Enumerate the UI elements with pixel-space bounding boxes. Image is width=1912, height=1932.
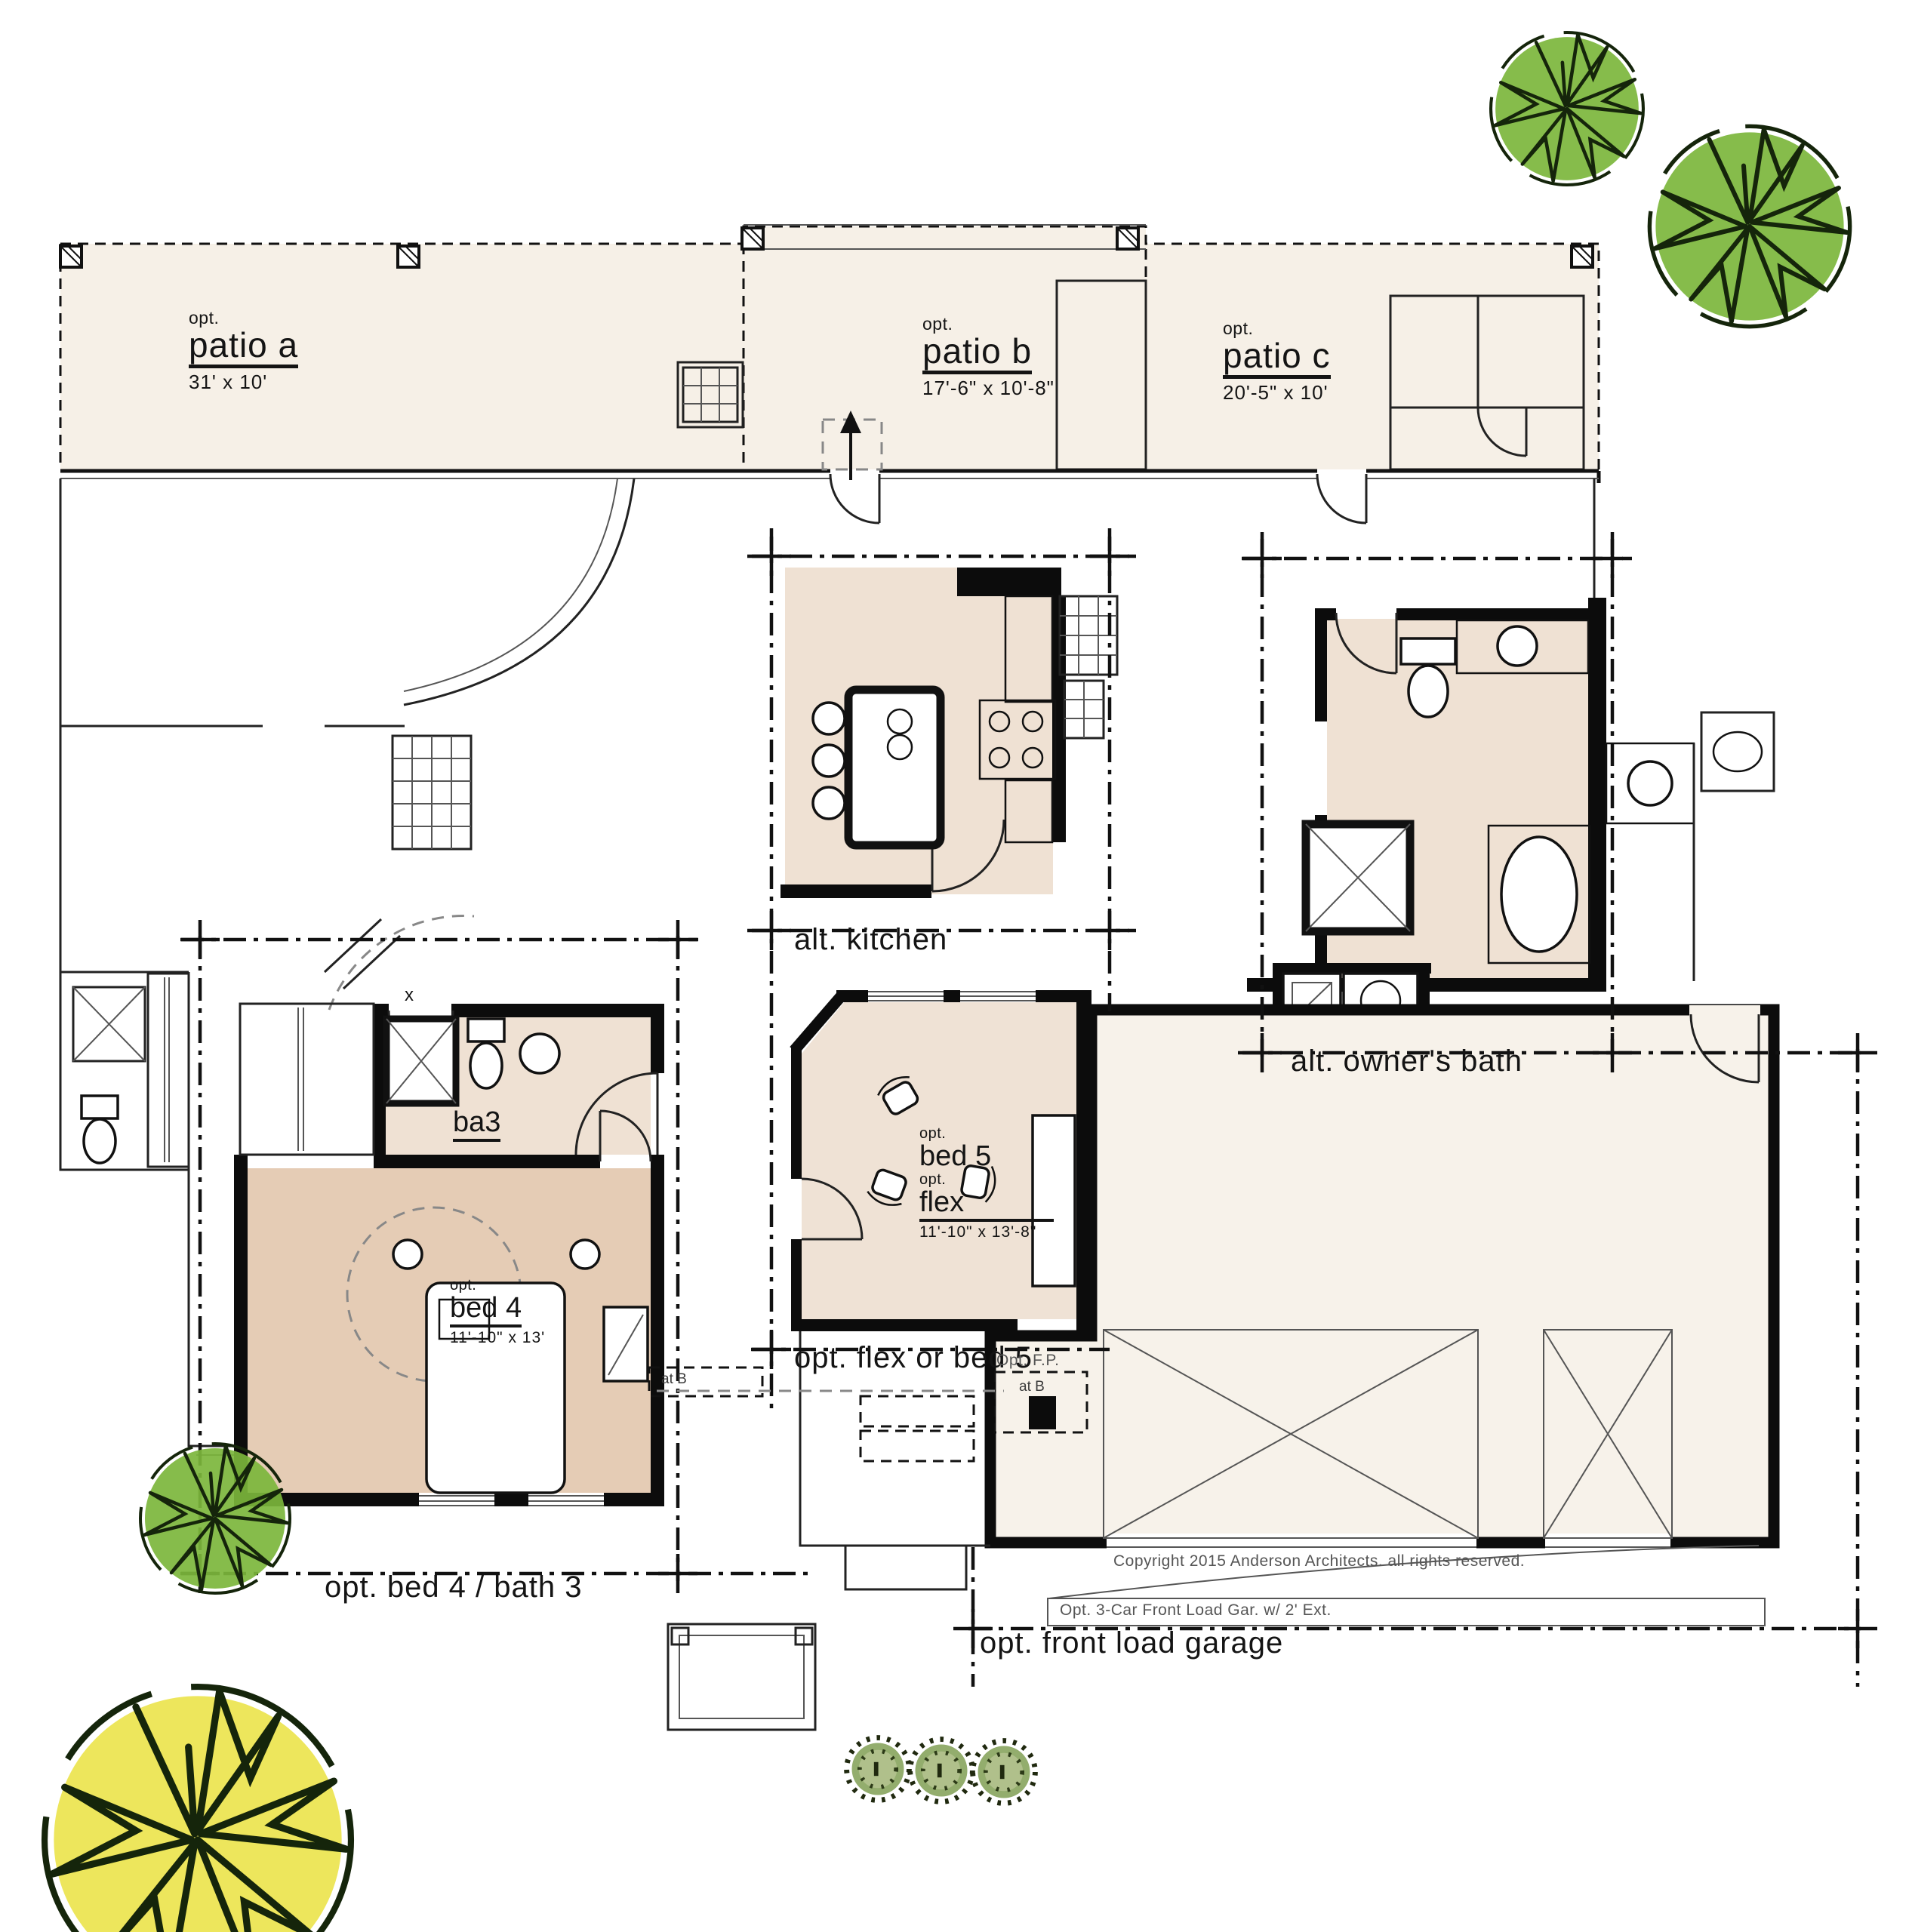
patio-b-opt: opt. <box>922 317 1055 332</box>
bed4-dims: 11'-10" x 13' <box>450 1330 545 1346</box>
patio-c-name: patio c <box>1223 338 1331 379</box>
bush-icon <box>910 1740 973 1802</box>
bush-icon <box>973 1741 1036 1804</box>
patio-c-label: opt. patio c 20'-5" x 10' <box>1223 321 1331 403</box>
alt-kitchen-label: alt. kitchen <box>794 924 947 955</box>
patio-post-icon <box>398 246 419 267</box>
tree-green-icon <box>1491 32 1643 185</box>
alt-owners-bath-label: alt. owner's bath <box>1291 1045 1523 1077</box>
opt-fp-note: Opt. F.P. <box>996 1352 1060 1369</box>
opt-bed4-bath3-label: opt. bed 4 / bath 3 <box>325 1571 582 1603</box>
porch-pad <box>668 1624 815 1730</box>
patio-a-label: opt. patio a 31' x 10' <box>189 311 298 392</box>
patio-a-opt: opt. <box>189 311 298 326</box>
ba3-label: ba3 <box>453 1108 500 1142</box>
patio-b-dims: 17'-6" x 10'-8" <box>922 378 1055 398</box>
patio-post-icon <box>1117 228 1138 249</box>
patio-b-label: opt. patio b 17'-6" x 10'-8" <box>922 317 1055 398</box>
patio-c-opt: opt. <box>1223 321 1331 337</box>
at-b-fireplace-note: at B <box>1019 1380 1045 1395</box>
bush-icon <box>847 1738 910 1801</box>
copyright-text: Copyright 2015 Anderson Architects. all … <box>1113 1553 1525 1570</box>
patio-c-dims: 20'-5" x 10' <box>1223 383 1331 403</box>
tree-yellow-icon <box>45 1687 351 1932</box>
ba3-name: ba3 <box>453 1108 500 1142</box>
patio-a-dims: 31' x 10' <box>189 372 298 392</box>
at-b-hall-note: at B <box>661 1372 687 1387</box>
alt-owners-bath-block <box>1247 478 1774 1032</box>
alt-kitchen-block <box>781 568 1117 898</box>
patio-post-icon <box>742 228 763 249</box>
patio-post-icon <box>60 246 82 267</box>
garage-ext-note: Opt. 3-Car Front Load Gar. w/ 2' Ext. <box>1060 1602 1332 1619</box>
tree-green-icon <box>140 1444 290 1593</box>
tree-green-icon <box>1649 126 1849 326</box>
bed5-flex-label: opt. bed 5 opt. flex 11'-10" x 13'-8" <box>919 1128 1054 1241</box>
bed4-bath3-block <box>234 1004 664 1506</box>
x-marker: x <box>405 986 414 1004</box>
bed5-flex-dims: 11'-10" x 13'-8" <box>919 1224 1054 1241</box>
floor-plan-drawing <box>0 0 1912 1932</box>
patio-post-icon <box>1572 246 1593 267</box>
bed4-label: opt. bed 4 11'-10" x 13' <box>450 1279 545 1346</box>
bed5-opt: opt. <box>919 1128 1054 1140</box>
flex-opt: opt. <box>919 1174 1054 1186</box>
patio-b-name: patio b <box>922 334 1032 374</box>
patio-a-name: patio a <box>189 328 298 368</box>
opt-front-load-garage-label: opt. front load garage <box>980 1627 1283 1659</box>
bed4-opt: opt. <box>450 1279 545 1292</box>
bed5-name: bed 5 <box>919 1142 991 1171</box>
bed4-name: bed 4 <box>450 1294 522 1327</box>
flex-name: flex <box>919 1188 1054 1222</box>
floor-plan-sheet: opt. patio a 31' x 10' opt. patio b 17'-… <box>0 0 1912 1932</box>
